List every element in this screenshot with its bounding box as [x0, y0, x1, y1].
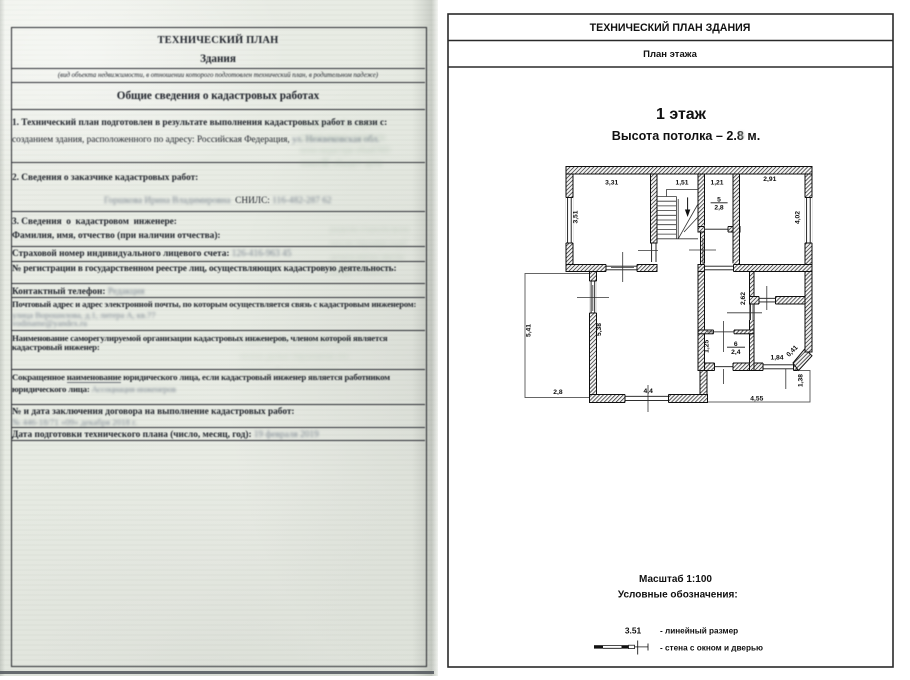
svg-text:1,21: 1,21 [710, 180, 723, 187]
svg-text:- линейный размер: - линейный размер [660, 627, 738, 636]
svg-text:1,38: 1,38 [797, 374, 804, 387]
svg-text:5,38: 5,38 [596, 323, 603, 336]
svg-text:- стена с окном и дверью: - стена с окном и дверью [660, 644, 763, 653]
svg-text:5: 5 [739, 131, 745, 142]
svg-text:3,51: 3,51 [573, 210, 580, 223]
svg-text:2,8: 2,8 [553, 389, 563, 396]
svg-text:2,62: 2,62 [740, 292, 747, 305]
svg-text:2,91: 2,91 [763, 176, 776, 183]
svg-text:1,25: 1,25 [703, 340, 710, 353]
svg-text:Масштаб 1:100: Масштаб 1:100 [639, 573, 712, 585]
svg-text:4,55: 4,55 [750, 396, 763, 403]
svg-text:1,51: 1,51 [675, 180, 688, 187]
svg-text:4,02: 4,02 [795, 211, 802, 224]
svg-text:1,84: 1,84 [770, 355, 783, 362]
svg-text:1 этаж: 1 этаж [656, 106, 707, 123]
svg-text:3.51: 3.51 [625, 626, 642, 636]
svg-text:2,8: 2,8 [714, 205, 724, 212]
svg-text:5,41: 5,41 [526, 324, 533, 337]
svg-text:ТЕХНИЧЕСКИЙ ПЛАН ЗДАНИЯ: ТЕХНИЧЕСКИЙ ПЛАН ЗДАНИЯ [590, 21, 751, 34]
svg-text:3,31: 3,31 [605, 180, 618, 187]
svg-text:2,4: 2,4 [731, 349, 741, 356]
svg-text:4,4: 4,4 [644, 388, 654, 395]
svg-text:План этажа: План этажа [643, 49, 697, 60]
svg-text:Условные обозначения:: Условные обозначения: [618, 589, 738, 601]
